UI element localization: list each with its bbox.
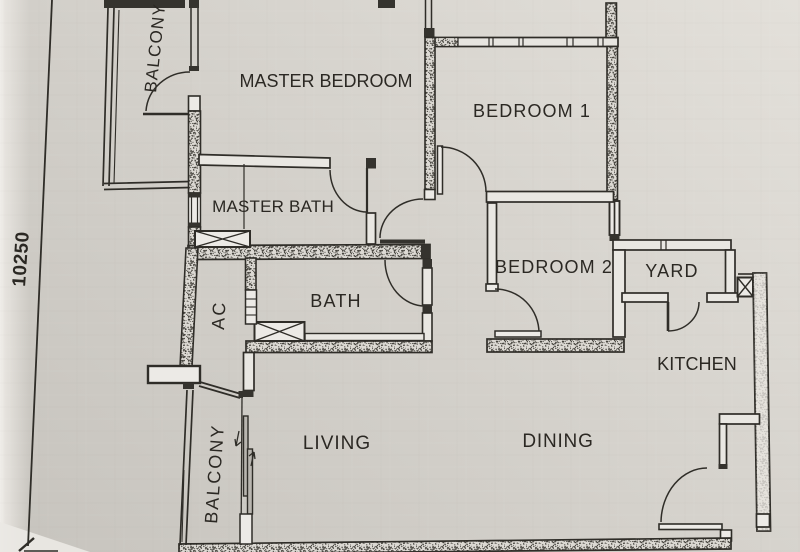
svg-text:AC: AC: [208, 300, 229, 330]
svg-text:YARD: YARD: [645, 261, 698, 281]
svg-text:MASTER BATH: MASTER BATH: [212, 197, 334, 216]
svg-text:MASTER BEDROOM: MASTER BEDROOM: [239, 71, 412, 91]
svg-text:10250: 10250: [9, 231, 34, 288]
svg-text:DINING: DINING: [522, 431, 593, 452]
svg-text:BATH: BATH: [310, 291, 361, 311]
svg-text:BEDROOM 2: BEDROOM 2: [495, 257, 613, 277]
svg-text:LIVING: LIVING: [303, 433, 371, 454]
svg-text:KITCHEN: KITCHEN: [657, 354, 737, 374]
svg-text:BEDROOM 1: BEDROOM 1: [473, 101, 591, 121]
svg-text:BALCONY: BALCONY: [201, 423, 228, 524]
